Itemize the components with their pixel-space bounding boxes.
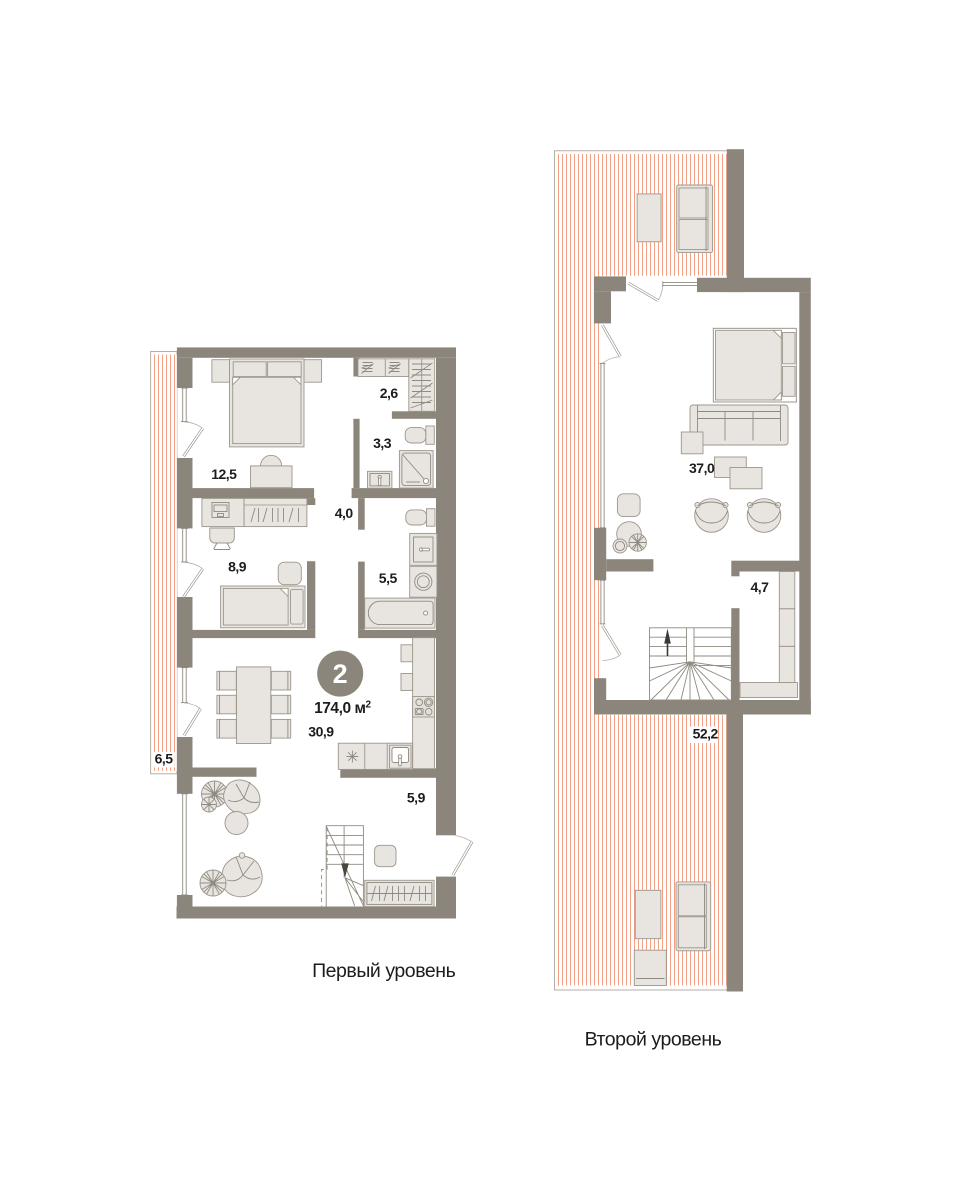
svg-text:6,5: 6,5 [155, 751, 174, 767]
svg-text:37,0: 37,0 [689, 460, 715, 476]
svg-text:174,0 м2: 174,0 м2 [314, 699, 371, 717]
svg-text:5,5: 5,5 [379, 570, 398, 586]
svg-text:3,3: 3,3 [373, 435, 392, 451]
svg-text:5,9: 5,9 [407, 789, 426, 805]
svg-text:4,0: 4,0 [335, 505, 354, 521]
svg-text:52,2: 52,2 [693, 726, 719, 742]
svg-text:30,9: 30,9 [308, 724, 334, 740]
svg-text:8,9: 8,9 [228, 558, 247, 574]
svg-text:2: 2 [333, 659, 348, 689]
svg-text:4,7: 4,7 [751, 579, 770, 595]
svg-text:2,6: 2,6 [380, 385, 399, 401]
svg-text:Второй уровень: Второй уровень [585, 1029, 722, 1051]
svg-text:Первый уровень: Первый уровень [312, 960, 456, 982]
svg-text:12,5: 12,5 [211, 466, 237, 482]
